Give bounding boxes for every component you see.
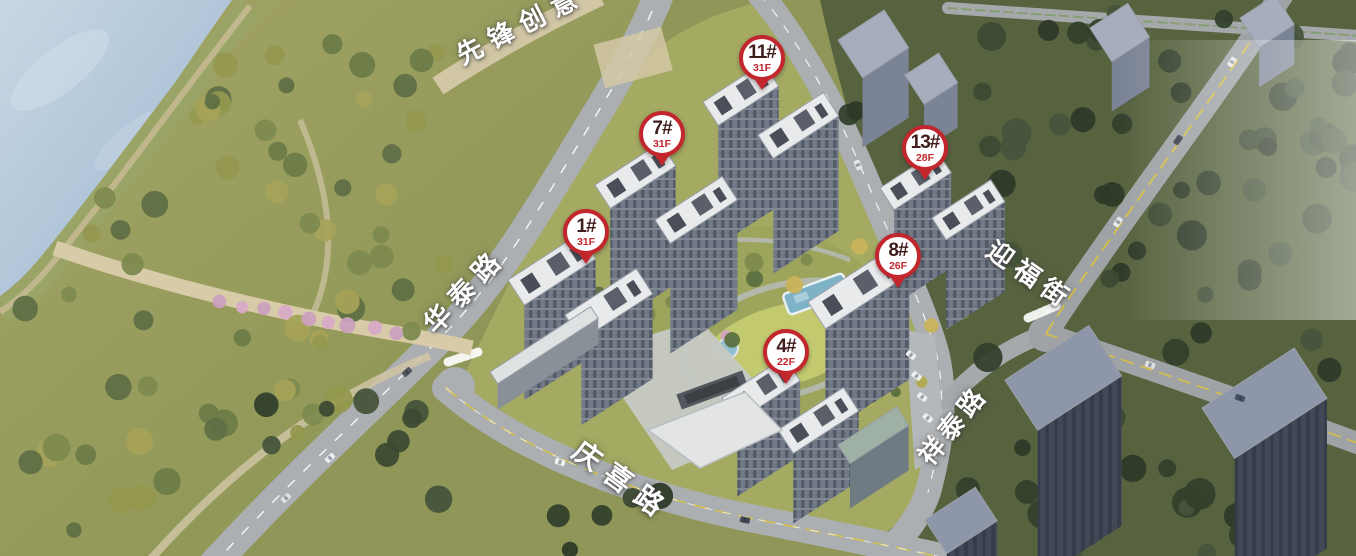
building-pin-13[interactable]: 13# 28F xyxy=(897,125,953,180)
building-floors: 26F xyxy=(889,261,907,272)
pin-circle: 1# 31F xyxy=(563,209,609,255)
aerial-render xyxy=(0,0,1356,556)
building-floors: 31F xyxy=(753,63,771,74)
building-number: 4# xyxy=(776,337,795,356)
building-number: 7# xyxy=(652,119,671,138)
building-pin-11[interactable]: 11# 31F xyxy=(734,35,790,90)
building-pin-4[interactable]: 4# 22F xyxy=(758,329,814,384)
building-number: 13# xyxy=(911,133,940,152)
building-floors: 28F xyxy=(916,153,934,164)
pin-circle: 8# 26F xyxy=(875,233,921,279)
building-pin-7[interactable]: 7# 31F xyxy=(634,111,690,166)
building-floors: 31F xyxy=(577,237,595,248)
building-pin-1[interactable]: 1# 31F xyxy=(558,209,614,264)
pin-circle: 11# 31F xyxy=(739,35,785,81)
building-floors: 31F xyxy=(653,139,671,150)
building-floors: 22F xyxy=(777,357,795,368)
pin-circle: 4# 22F xyxy=(763,329,809,375)
haze-overlay xyxy=(1120,40,1356,320)
building-number: 1# xyxy=(576,217,595,236)
pin-circle: 7# 31F xyxy=(639,111,685,157)
pin-circle: 13# 28F xyxy=(902,125,948,171)
aerial-map: 先锋创意 华泰路 迎福街 祥泰路 庆喜路 11# 31F 7# 31F 13# … xyxy=(0,0,1356,556)
building-pin-8[interactable]: 8# 26F xyxy=(870,233,926,288)
building-number: 11# xyxy=(748,43,776,62)
building-number: 8# xyxy=(888,241,907,260)
